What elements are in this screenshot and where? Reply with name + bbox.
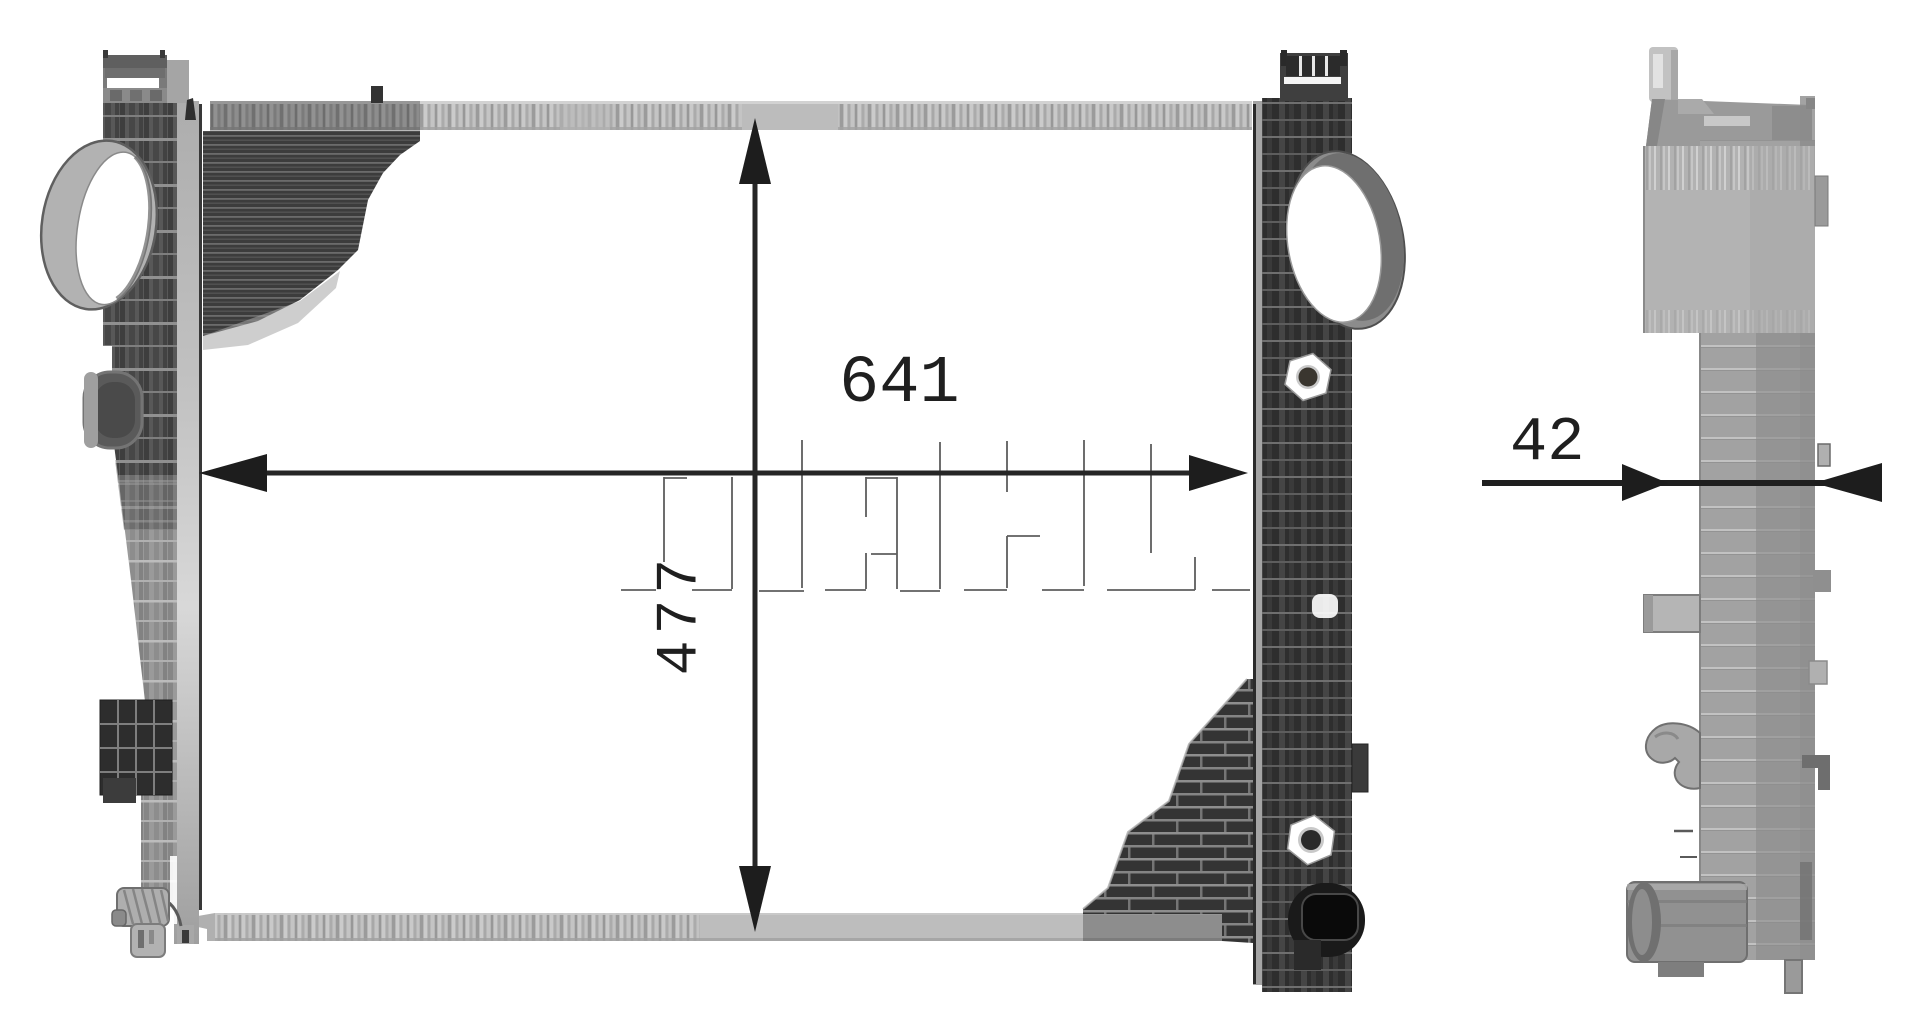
svg-text:641: 641 [839, 346, 960, 422]
svg-text:477: 477 [648, 553, 713, 675]
svg-text:42: 42 [1510, 407, 1584, 478]
